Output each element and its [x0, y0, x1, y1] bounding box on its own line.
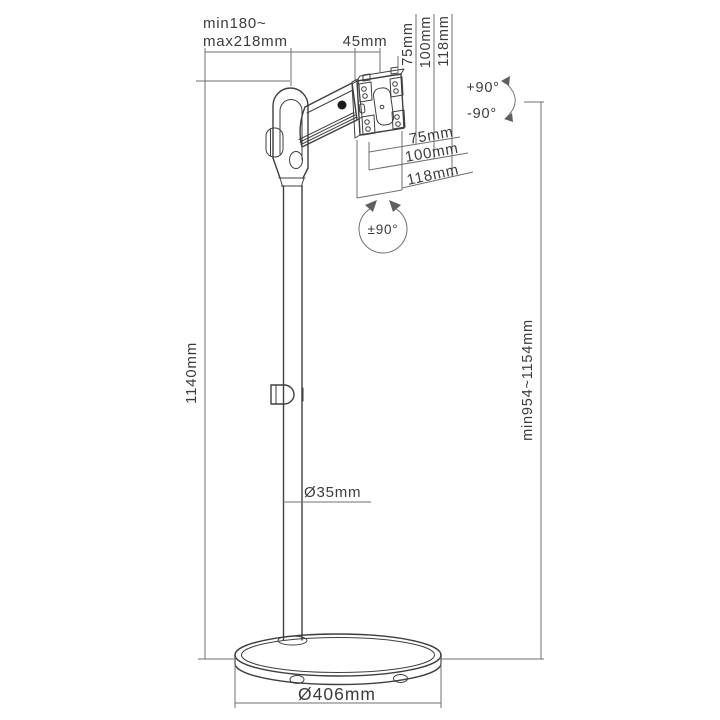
tilt-up-label: +90° [466, 80, 500, 96]
arm-reach-label-line1: min180~ [203, 15, 267, 32]
base-diameter-label: Ø406mm [298, 684, 376, 704]
head-collar-side-l [280, 178, 283, 186]
base-rim-ellipse [242, 638, 435, 673]
height-range-label: min954~1154mm [520, 319, 536, 441]
dimension-diagram-page: min180~ max218mm 45mm 75mm 100mm 118mm 7… [0, 0, 720, 720]
arm-pivot-dot [338, 101, 347, 110]
vesa-plate [352, 67, 405, 138]
head-inner-capsule [280, 100, 302, 161]
bracket-depth-label: 45mm [343, 33, 388, 50]
tab-hole [393, 82, 398, 87]
tab-hole [396, 122, 401, 127]
tab-hole [395, 115, 400, 120]
vesa-col-label-75: 75mm [400, 22, 416, 66]
tilt-arc-arrow-top [501, 76, 510, 86]
pole-diameter-label: Ø35mm [304, 484, 361, 501]
tilt-arc-arrow-bottom [504, 113, 513, 122]
plate-slot [359, 104, 365, 114]
base-foot-right [394, 675, 408, 683]
tab-hole [394, 89, 399, 94]
vesa-row-label-118: 118mm [405, 161, 460, 189]
rotate-range-label: ±90° [367, 222, 398, 237]
head-detail-oval [290, 152, 303, 169]
tab-hole [366, 127, 371, 132]
arm-reach-label-line2: max218mm [203, 33, 288, 50]
rotate-arc-arrow-left [365, 200, 377, 212]
plate-center-hole [380, 105, 384, 109]
head-taper-right [303, 168, 308, 178]
pole [278, 186, 307, 645]
vesa-col-label-118: 118mm [436, 15, 452, 66]
pole-height-label: 1140mm [183, 342, 200, 404]
plate-tab-tl [359, 82, 372, 102]
floor-stand-diagram: min180~ max218mm 45mm 75mm 100mm 118mm 7… [0, 0, 720, 720]
plate-tab-bl [362, 115, 375, 135]
tab-hole [362, 87, 367, 92]
head-collar-side-r [302, 178, 305, 186]
vesa-col-label-100: 100mm [418, 16, 434, 68]
tab-hole [363, 94, 368, 99]
height-clamp [271, 385, 303, 404]
tab-hole [365, 120, 370, 125]
dim-subplate-slant [357, 190, 402, 198]
head-taper-left [273, 158, 280, 178]
pole-head [266, 88, 308, 186]
tilt-down-label: -90° [467, 106, 497, 122]
base-top-ellipse [235, 634, 441, 676]
rotate-arc-arrow-right [389, 200, 401, 212]
arm-spring-line-1 [301, 118, 356, 145]
base-disc [235, 634, 441, 684]
clamp-knob [271, 385, 294, 404]
tilt-arc [505, 82, 515, 118]
